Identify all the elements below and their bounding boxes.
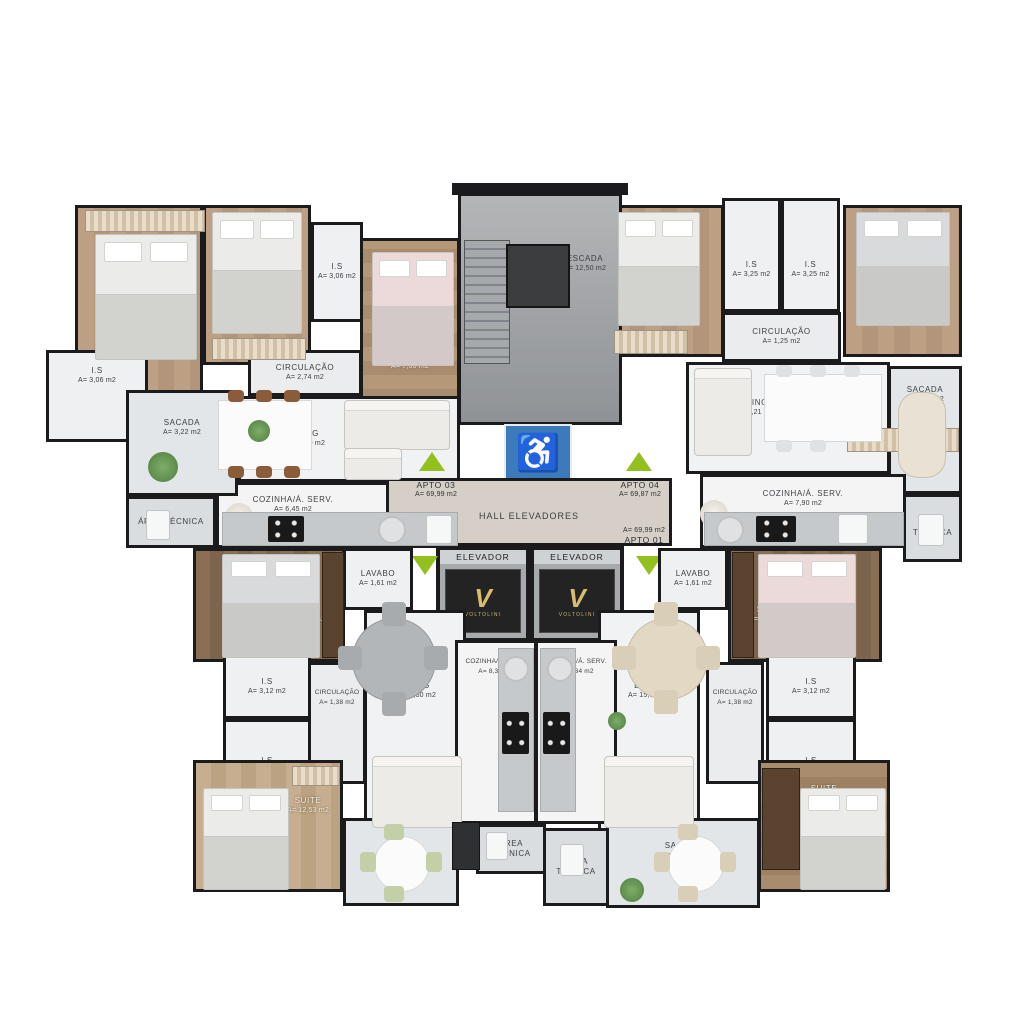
room-area: A= 12,53 m2 [287,807,329,816]
room-label: CIRCULAÇÃO [752,327,810,337]
chair [720,852,736,872]
double-bed [222,554,320,658]
chair [382,692,406,716]
cooktop [502,712,529,754]
room-is1-apto02: I.S A= 3,12 m2 [223,655,311,719]
cooktop [543,712,570,754]
chair [256,466,272,478]
chair [426,852,442,872]
chair [810,440,826,452]
double-bed [618,212,700,326]
appliance [426,515,452,544]
room-label: COZINHA/Á. SERV. [253,495,334,505]
room-label: I.S [746,260,758,270]
room-label: LAVABO [676,569,710,579]
room-is1-apto04: I.S A= 3,25 m2 [722,198,781,312]
chair [612,646,636,670]
double-bed [372,252,454,366]
chair [678,824,698,840]
room-label: ESCADA [567,254,604,264]
chair [678,886,698,902]
chair [382,602,406,626]
sink [547,656,573,682]
dining-table [764,374,882,442]
room-area: A= 3,06 m2 [318,273,356,282]
chair [284,390,300,402]
room-label: I.S [805,260,817,270]
double-bed [95,234,197,360]
chair [810,365,826,377]
apartment-tag-apto01: A= 69,99 m2 APTO 01 [606,527,682,545]
sofa [694,368,752,456]
room-area: A= 12,50 m2 [564,265,606,274]
room-area: A= 1,38 m2 [319,699,354,707]
chair [654,690,678,714]
stair-treads [464,240,510,364]
chair [284,466,300,478]
sink [503,656,529,682]
wardrobe [762,768,800,870]
room-label: SACADA [164,418,201,428]
entry-arrow-icon [626,452,652,471]
room-area: A= 7,90 m2 [784,500,822,509]
room-area: A= 3,22 m2 [163,429,201,438]
cooktop [268,516,304,542]
double-bed [758,554,856,658]
sofa [604,756,694,828]
apartment-tag-apto04: APTO 04 A= 69,87 m2 [602,480,678,498]
room-label: I.S [91,366,103,376]
chair [228,390,244,402]
chair [776,440,792,452]
chair [360,852,376,872]
room-area: A= 1,25 m2 [763,338,801,347]
room-area: A= 1,61 m2 [674,580,712,589]
balcony-table [668,836,724,892]
plant [620,878,644,902]
sofa [372,756,462,828]
balcony-table [374,836,430,892]
technical-shaft [452,822,480,870]
entry-arrow-icon [412,556,438,575]
room-area: A= 3,12 m2 [248,688,286,697]
chair [654,602,678,626]
wardrobe [292,766,340,786]
plant [608,712,626,730]
voltolini-v-icon: V [474,585,491,611]
chair [776,365,792,377]
chair [696,646,720,670]
cooktop [756,516,796,542]
room-area: A= 3,25 m2 [792,271,830,280]
room-is1-apto01: I.S A= 3,12 m2 [766,655,856,719]
appliance [838,514,868,544]
room-label: CIRCULAÇÃO [276,363,334,373]
elevator-label: ELEVADOR [440,550,526,564]
chair [228,466,244,478]
room-label: SUITE [295,796,322,806]
sofa [344,400,450,450]
chair [338,646,362,670]
room-circulacao-apto01: CIRCULAÇÃO A= 1,38 m2 [706,662,764,784]
room-area: A= 1,38 m2 [717,699,752,707]
plant [248,420,270,442]
wardrobe [212,338,306,360]
room-area: A= 3,06 m2 [78,377,116,386]
plant [148,452,178,482]
room-is2-apto04: I.S A= 3,25 m2 [781,198,840,312]
stair-landing [506,244,570,308]
accessibility-sign: ♿ [504,424,572,482]
room-label: CIRCULAÇÃO [713,689,758,697]
lounge-chair [898,392,946,478]
double-bed [212,212,302,334]
room-label: I.S [261,677,273,687]
room-area: A= 3,25 m2 [733,271,771,280]
elevator-label: ELEVADOR [534,550,620,564]
room-is1-apto03: I.S A= 3,06 m2 [311,222,363,322]
chair [424,646,448,670]
double-bed [856,212,950,326]
room-area: A= 3,12 m2 [792,688,830,697]
room-label: LAVABO [361,569,395,579]
chair [256,390,272,402]
room-label: I.S [805,677,817,687]
floor-plan: SUITE A= 10,71 m2 DORMITORIO A= 7,60 m2 … [0,0,1024,1024]
wardrobe [732,552,754,658]
chair [844,365,860,377]
room-area: A= 1,61 m2 [359,580,397,589]
chair [654,852,670,872]
hall-label: HALL ELEVADORES [455,506,603,524]
wardrobe [614,330,688,354]
wardrobe [85,210,205,232]
appliance [146,510,170,540]
room-area: A= 2,74 m2 [286,374,324,383]
double-bed [800,788,886,890]
room-label: I.S [331,262,343,272]
room-label: COZINHA/Á. SERV. [763,489,844,499]
room-label: CIRCULAÇÃO [315,689,360,697]
room-lavabo-apto01: LAVABO A= 1,61 m2 [658,548,728,610]
apartment-tag-apto03: APTO 03 A= 69,99 m2 [398,480,474,498]
voltolini-v-icon: V [568,585,585,611]
wheelchair-icon: ♿ [516,435,561,471]
entry-arrow-icon [419,452,445,471]
wardrobe [322,552,344,658]
sofa [344,448,402,480]
double-bed [203,788,289,890]
appliance [560,844,584,876]
room-circulacao-apto04: CIRCULAÇÃO A= 1,25 m2 [722,312,841,362]
kitchen-counter [222,512,458,546]
chair [384,886,404,902]
chair [384,824,404,840]
sink [716,516,744,544]
room-area-tecnica-apto03: ÁREA TÉCNICA [126,496,216,548]
appliance [486,832,508,860]
room-lavabo-apto02: LAVABO A= 1,61 m2 [343,548,413,610]
appliance [918,514,944,546]
sink [378,516,406,544]
